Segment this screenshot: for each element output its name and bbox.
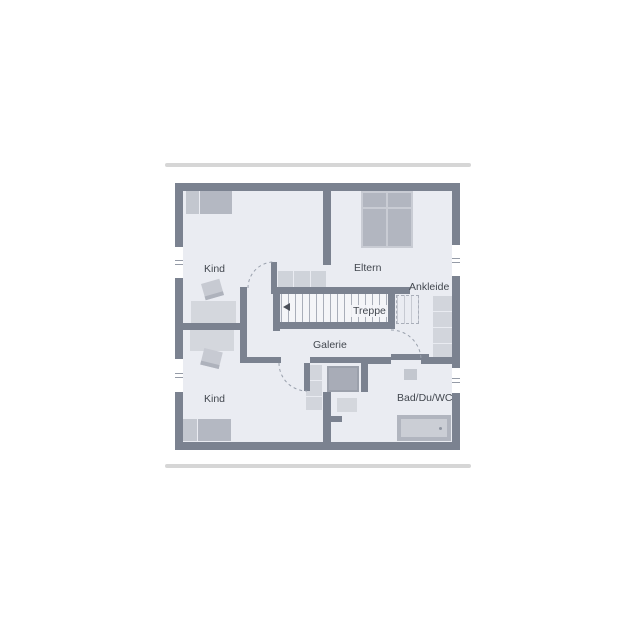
- window-symbol: [452, 245, 460, 276]
- bed-pillow: [183, 419, 197, 441]
- wall: [273, 322, 395, 329]
- room-label-eltern: Eltern: [354, 262, 381, 274]
- wall: [310, 357, 362, 363]
- desk: [191, 301, 236, 323]
- washbasin: [404, 369, 417, 380]
- bed-mattress: [363, 209, 386, 246]
- wall: [178, 323, 247, 330]
- shower: [327, 366, 359, 392]
- bed-pillow: [186, 191, 199, 214]
- bathtub: [397, 415, 451, 441]
- bath-shelf: [337, 398, 357, 412]
- drain: [439, 427, 442, 430]
- stairs-upper-flight-dashed: [396, 295, 419, 324]
- room-label-treppe: Treppe: [351, 305, 388, 317]
- shelf: [278, 271, 326, 288]
- wall: [323, 392, 331, 450]
- bed-mattress: [388, 209, 411, 246]
- wall: [368, 357, 391, 364]
- wall: [361, 357, 368, 392]
- bed-double: [361, 191, 413, 248]
- floor-plan-page: Kind Eltern Ankleide Treppe Galerie Kind…: [0, 0, 636, 636]
- door-leaf: [304, 363, 310, 391]
- bed-single: [200, 191, 232, 214]
- desk: [190, 330, 234, 351]
- wardrobe: [433, 296, 452, 362]
- window-symbol: [452, 368, 460, 393]
- top-divider-bar: [165, 163, 471, 167]
- bottom-divider-bar: [165, 464, 471, 468]
- wall: [240, 357, 281, 363]
- wall: [388, 287, 395, 329]
- room-label-ankleide: Ankleide: [409, 281, 449, 293]
- wall: [323, 191, 331, 265]
- window-symbol: [175, 247, 183, 278]
- door-leaf: [271, 262, 277, 288]
- wall: [331, 416, 342, 422]
- room-label-bad: Bad/Du/WC: [397, 392, 452, 404]
- room-label-kind-top: Kind: [204, 263, 225, 275]
- bed-single: [198, 419, 231, 441]
- room-label-galerie: Galerie: [313, 339, 347, 351]
- window-symbol: [175, 359, 183, 392]
- bed-pillow: [388, 193, 411, 207]
- stair-direction-arrow-icon: [283, 303, 290, 311]
- bed-pillow: [363, 193, 386, 207]
- room-label-kind-bottom: Kind: [204, 393, 225, 405]
- door-leaf: [391, 354, 429, 360]
